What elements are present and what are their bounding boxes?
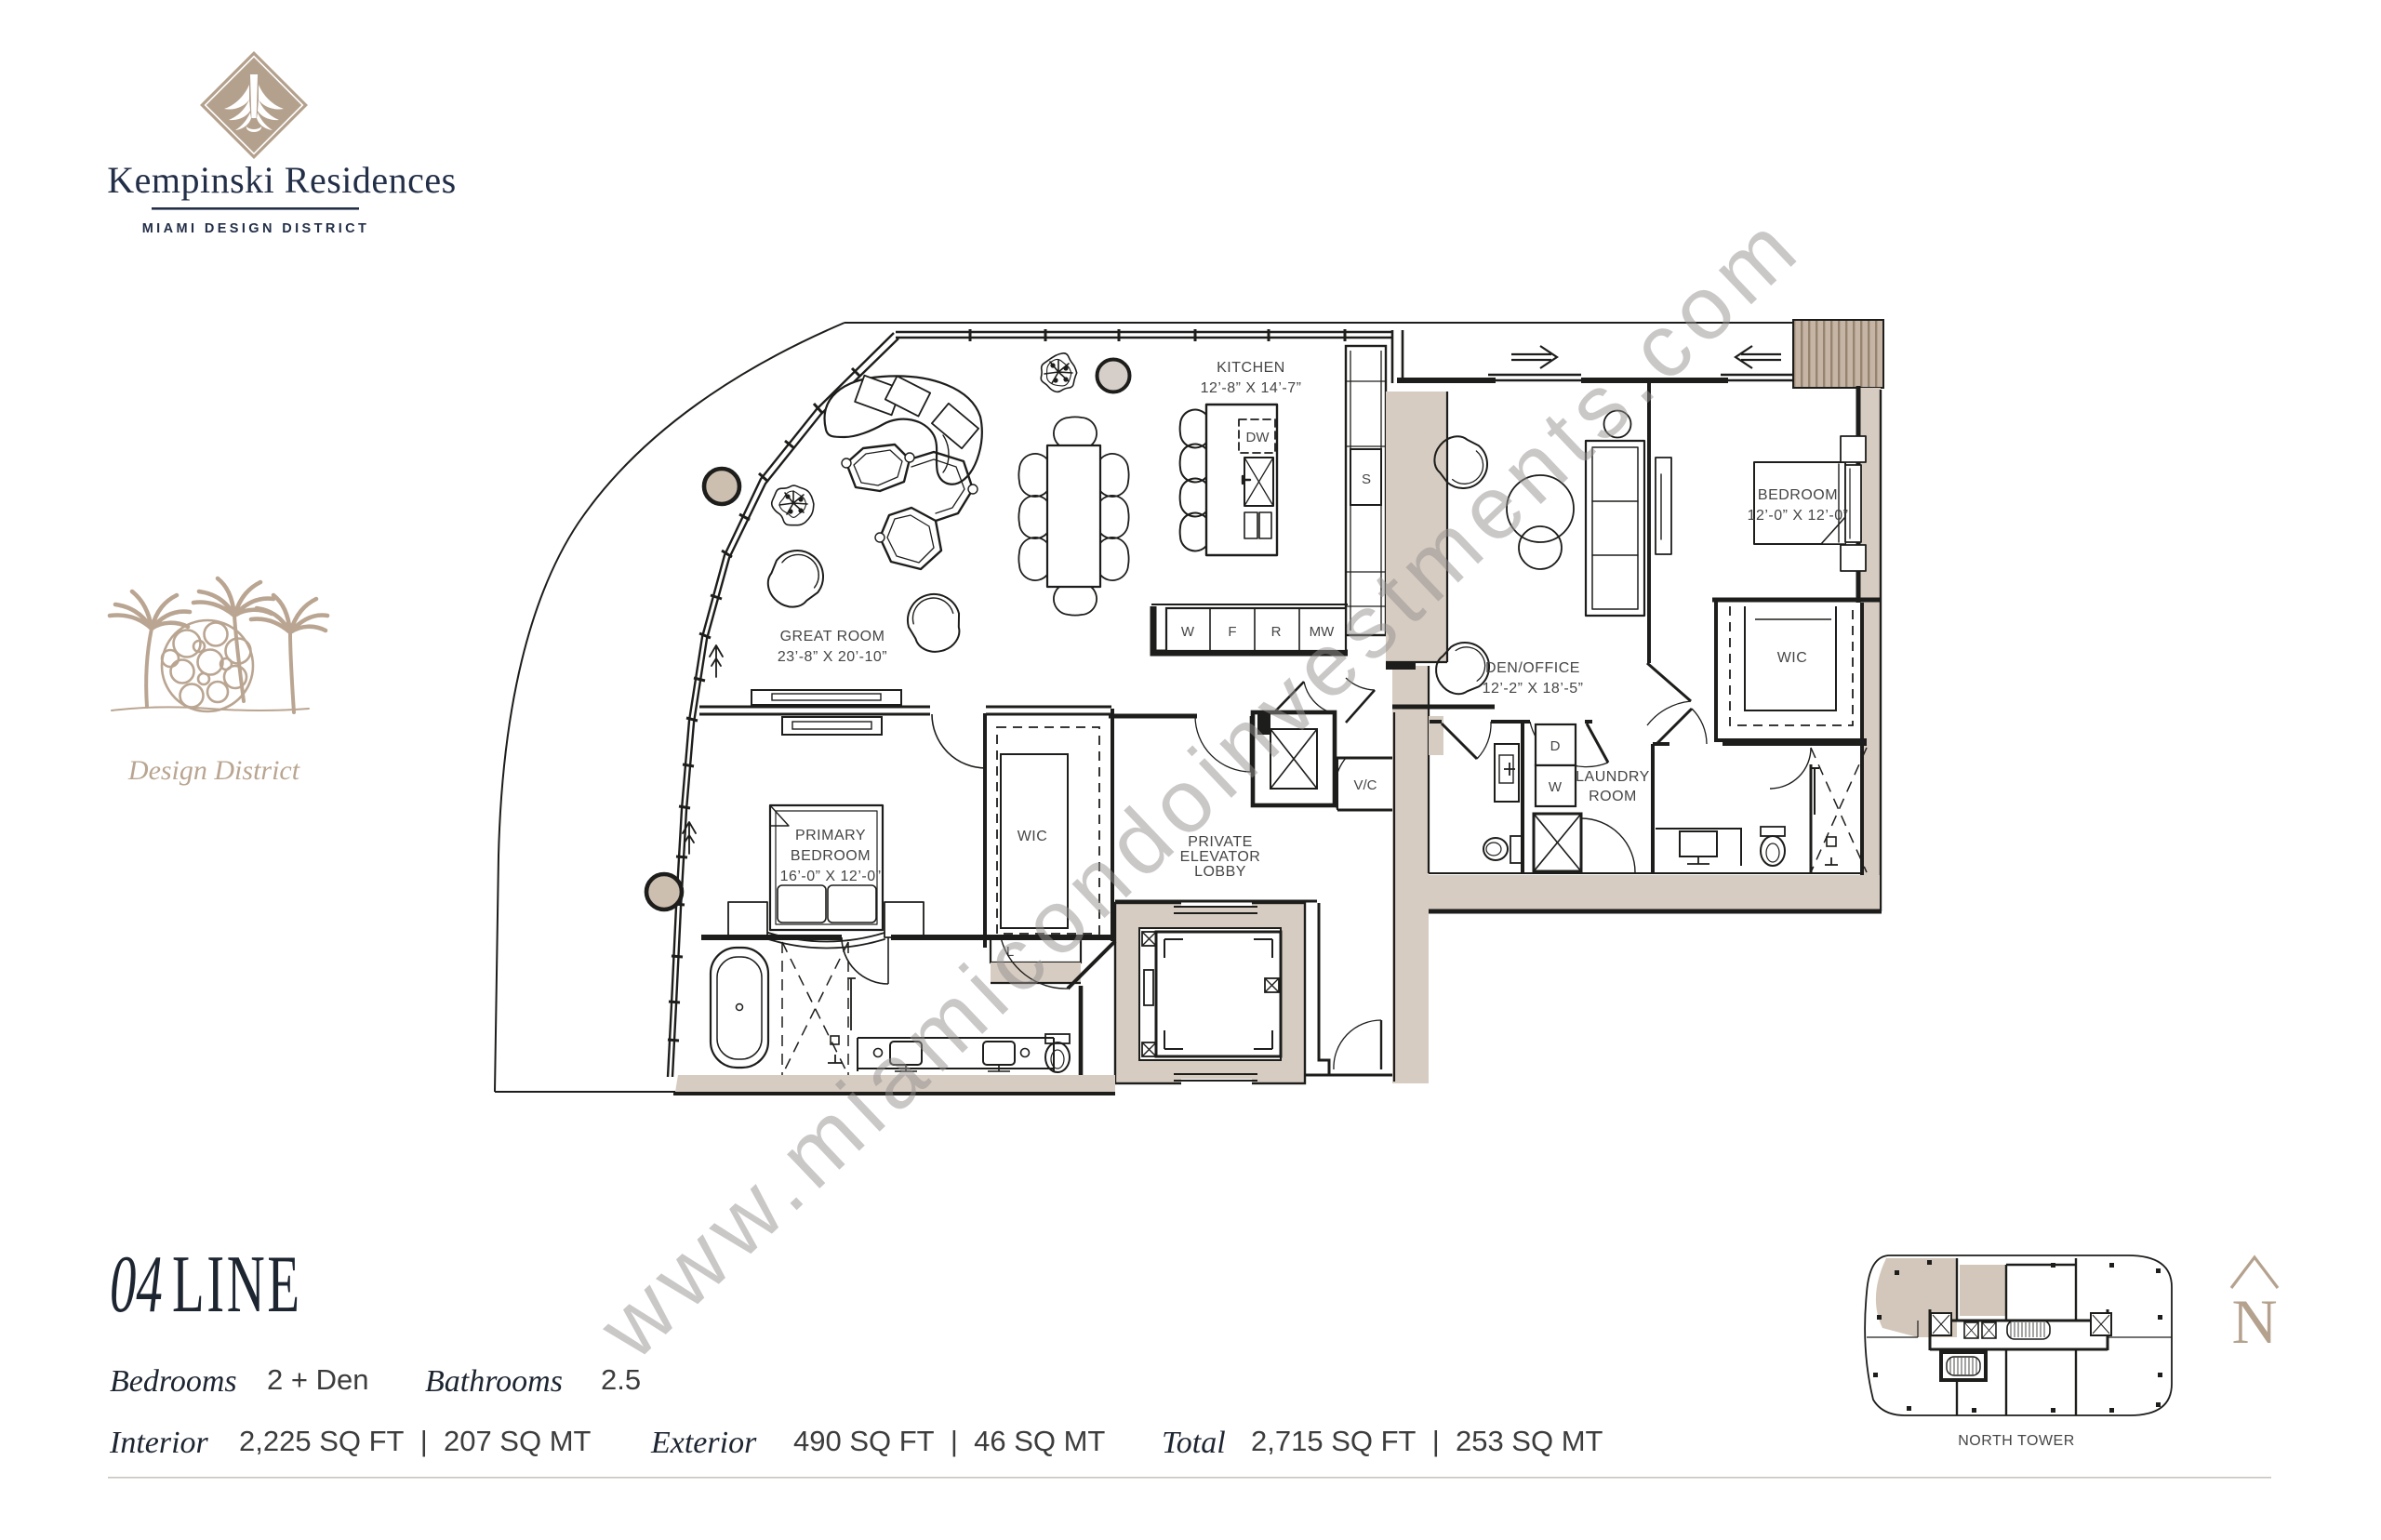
svg-text:04LINE: 04LINE <box>110 1240 302 1330</box>
svg-text:BEDROOM: BEDROOM <box>1758 487 1838 503</box>
svg-text:W: W <box>1549 779 1563 795</box>
svg-text:S: S <box>1362 471 1371 487</box>
svg-text:GREAT ROOM: GREAT ROOM <box>780 629 885 644</box>
svg-text:23’-8” X 20’-10”: 23’-8” X 20’-10” <box>778 649 887 665</box>
svg-text:Interior: Interior <box>109 1426 209 1460</box>
svg-text:KITCHEN: KITCHEN <box>1217 360 1285 376</box>
svg-text:2,715 SQ FT | 253 SQ MT: 2,715 SQ FT | 253 SQ MT <box>1251 1425 1603 1457</box>
svg-text:MIAMI DESIGN DISTRICT: MIAMI DESIGN DISTRICT <box>142 221 370 236</box>
svg-text:Bathrooms: Bathrooms <box>425 1364 563 1399</box>
svg-text:F: F <box>1228 624 1236 640</box>
svg-text:Total: Total <box>1162 1426 1226 1460</box>
svg-text:WIC: WIC <box>1018 829 1048 844</box>
svg-text:BEDROOM: BEDROOM <box>791 848 871 864</box>
svg-text:Kempinski Residences: Kempinski Residences <box>107 159 457 201</box>
svg-text:PRIMARY: PRIMARY <box>795 828 866 843</box>
svg-text:16’-0” X 12’-0”: 16’-0” X 12’-0” <box>780 869 882 884</box>
svg-text:www.miamicondoinvestments.com: www.miamicondoinvestments.com <box>579 193 1820 1378</box>
svg-text:R: R <box>1271 624 1282 640</box>
svg-text:LAUNDRY: LAUNDRY <box>1576 769 1650 785</box>
svg-text:490 SQ FT | 46 SQ MT: 490 SQ FT | 46 SQ MT <box>793 1425 1105 1457</box>
svg-text:12’-2” X 18’-5”: 12’-2” X 18’-5” <box>1483 681 1584 697</box>
svg-text:12’-0” X 12’-0”: 12’-0” X 12’-0” <box>1748 508 1849 524</box>
svg-text:ROOM: ROOM <box>1589 789 1637 804</box>
svg-text:Design District: Design District <box>127 755 300 786</box>
svg-text:2.5: 2.5 <box>601 1363 641 1396</box>
svg-text:2 + Den: 2 + Den <box>267 1363 368 1396</box>
svg-text:V/C: V/C <box>1353 777 1377 793</box>
svg-text:D: D <box>1550 738 1561 754</box>
svg-text:2,225 SQ FT | 207 SQ MT: 2,225 SQ FT | 207 SQ MT <box>239 1425 592 1457</box>
svg-text:NORTH TOWER: NORTH TOWER <box>1958 1433 2075 1449</box>
svg-text:W: W <box>1181 624 1195 640</box>
svg-text:LOBBY: LOBBY <box>1194 864 1246 880</box>
svg-text:DEN/OFFICE: DEN/OFFICE <box>1485 660 1580 676</box>
svg-text:12’-8” X 14’-7”: 12’-8” X 14’-7” <box>1201 380 1302 396</box>
svg-text:N: N <box>2231 1286 2277 1357</box>
svg-text:WIC: WIC <box>1777 650 1808 666</box>
svg-text:Exterior: Exterior <box>650 1426 757 1460</box>
svg-text:Bedrooms: Bedrooms <box>110 1364 237 1399</box>
svg-text:DW: DW <box>1246 430 1270 445</box>
